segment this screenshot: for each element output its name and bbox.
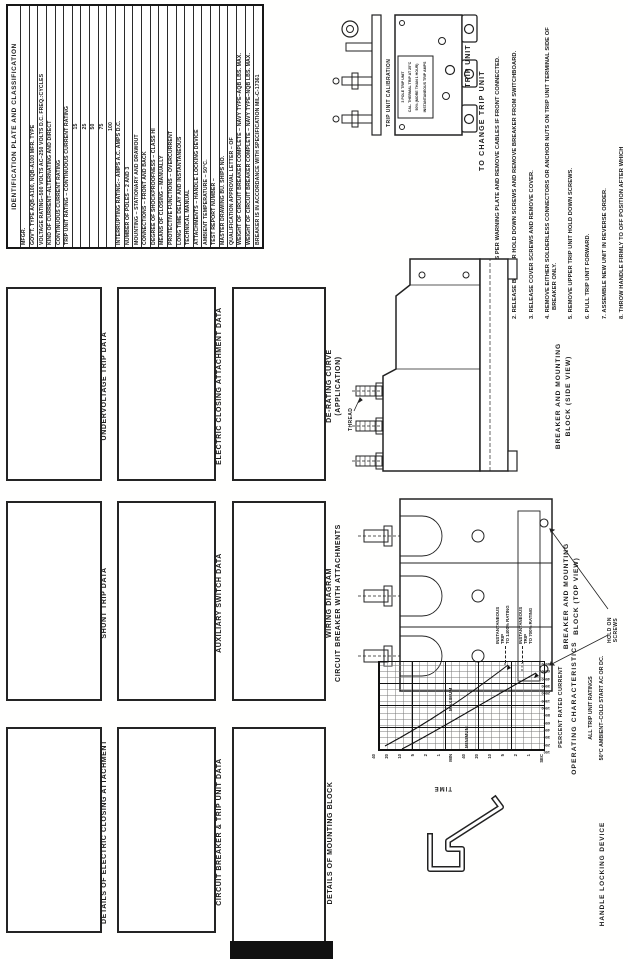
callout-dash-line	[522, 646, 523, 663]
table-row: 50	[89, 6, 98, 247]
box-label: DETAILS OF MOUNTING BLOCK	[326, 731, 335, 955]
table-row: LONG TIME DELAY AND INSTANTANEOUS	[176, 6, 185, 247]
table-row: 15	[72, 6, 81, 247]
y-tick: 1	[437, 754, 441, 773]
identification-table-rows: MFGR.GOV'T. TYPE AQB-A100, NQB-A100 MFR.…	[20, 6, 262, 247]
instruction-step: 7. ASSEMBLE NEW UNIT IN REVERSE ORDER.	[602, 3, 608, 319]
table-row: NUMBER OF POLES – 2 AND 3	[124, 6, 133, 247]
breaker-side-view-drawing	[350, 249, 550, 481]
table-row: MEANS OF CLOSING – MANUALLY	[158, 6, 167, 247]
table-row: INTERRUPTING RATING:– AMPS A.C. AMPS D.C…	[115, 6, 124, 247]
callout-dash-line	[505, 646, 506, 663]
y-tick: 2	[424, 754, 428, 773]
identification-table-title: IDENTIFICATION PLATE AND CLASSIFICATION	[8, 6, 20, 247]
box-label: AUXILIARY SWITCH DATA	[215, 505, 224, 701]
table-row: MOUNTING – STATIONARY AND DRAWOUT	[132, 6, 141, 247]
y-tick: 20	[385, 754, 389, 773]
side-view-caption: BREAKER AND MOUNTING BLOCK (SIDE VIEW)	[554, 311, 574, 481]
box-label: SHUNT TRIP DATA	[100, 505, 109, 701]
table-row: VOLTAGE RATING–500 VOLTS AC–250 VOLTS D.…	[37, 6, 46, 247]
y-tick: 40	[462, 754, 466, 773]
trip-unit-nameplate: 3 POLE TRIP UNITCAL. THERMAL TRIP AT 25°…	[398, 56, 431, 118]
table-row: 100	[106, 6, 115, 247]
instantaneous-trip-callout-2: INSTANTANEOUS TRIP TO 700% RATING	[518, 566, 534, 644]
chart-curves	[378, 663, 543, 751]
chart-title: OPERATING CHARACTERISTICS	[571, 623, 578, 793]
box-electric-closing-attachment-data	[117, 287, 216, 481]
chart-subtitle-1: ALL TRIP UNIT RATINGS	[588, 613, 594, 803]
y-tick: MIN	[449, 754, 453, 773]
box-label: DETAILS OF ELECTRIC CLOSING ATTACHMENT	[100, 731, 109, 933]
thread-callout: THREAD	[348, 408, 354, 431]
nameplate-line: 3 POLE TRIP UNIT	[402, 56, 406, 118]
y-tick: 5	[411, 754, 415, 773]
table-row: BREAKER IS IN ACCORDANCE WITH SPECIFICAT…	[253, 6, 262, 247]
table-row: 25	[80, 6, 89, 247]
box-label: CIRCUIT BREAKER & TRIP UNIT DATA	[215, 731, 224, 933]
instruction-step: 5. REMOVE UPPER TRIP UNIT HOLD DOWN SCRE…	[568, 3, 574, 319]
box-label: WIRING DIAGRAM CIRCUIT BREAKER WITH ATTA…	[325, 505, 343, 701]
box-details-mounting-block	[232, 727, 326, 955]
y-tick: 10	[398, 754, 402, 773]
chart-x-axis-label: PERCENT RATED CURRENT	[558, 651, 564, 763]
curve-label-maximum: MAXIMUM	[448, 687, 453, 711]
handle-locking-device-caption: HANDLE LOCKING DEVICE	[598, 789, 608, 959]
y-tick: 10	[488, 754, 492, 773]
box-auxiliary-switch-data	[117, 501, 216, 701]
y-tick: 2	[514, 754, 518, 773]
identification-table: IDENTIFICATION PLATE AND CLASSIFICATION …	[6, 4, 264, 249]
y-tick: 40	[372, 754, 376, 773]
y-tick: 20	[475, 754, 479, 773]
chart-x-ticks: 1002003004006008001000150020003000400060…	[546, 662, 558, 754]
instantaneous-trip-callout-1: INSTANTANEOUS TRIP TO 1400% RATING	[495, 566, 511, 644]
box-undervoltage-trip-data	[6, 287, 102, 481]
hold-on-screws-callout: HOLD ON SCREWS	[607, 617, 619, 643]
table-row: DEGREE OF SHOCKPROOFNESS – CLASS HI	[150, 6, 159, 247]
box-circuit-breaker-trip-unit-data	[117, 727, 216, 933]
nameplate-line: INSTANTANEOUS TRIP AMPS	[424, 56, 428, 118]
instruction-step: 8. THROW HANDLE FIRMLY TO OFF POSITION A…	[619, 3, 625, 319]
table-row: AMBIENT TEMPERATURE – 50°C.	[201, 6, 210, 247]
curve-label-minimum: MINIMUM	[464, 726, 469, 748]
box-details-electric-closing	[6, 727, 102, 933]
table-row: MFGR.	[20, 6, 29, 247]
box-derating-curve	[232, 287, 326, 481]
table-row: GOV'T. TYPE AQB-A100, NQB-A100 MFR. TYPE	[29, 6, 38, 247]
table-row: MASTER DRAWING BU. SHIPS NO.	[219, 6, 228, 247]
box-label: UNDERVOLTAGE TRIP DATA	[100, 291, 109, 481]
x-tick: 8000	[546, 654, 550, 666]
table-row: PROTECTIVE FUNCTIONS – OVERCURRENT	[167, 6, 176, 247]
nameplate-line: CAL. THERMAL TRIP AT 25°C	[409, 56, 413, 118]
table-row: QUALIFICATION APPROVAL LETTER – OF	[227, 6, 236, 247]
handle-locking-device-drawing	[420, 791, 605, 951]
table-row: 75	[98, 6, 107, 247]
table-row: TEST REPORT NUMBER –	[210, 6, 219, 247]
box-wiring-diagram	[232, 501, 326, 701]
box-shunt-trip-data	[6, 501, 102, 701]
binding-mark	[230, 941, 333, 959]
y-tick: 1	[527, 754, 531, 773]
chart-y-ticks: 402010521MIN402010521SEC	[372, 754, 544, 773]
table-row: CONTINUOUS CURRENT RATING	[55, 6, 64, 247]
table-row: KIND OF CURRENT–ALTERNATING AND DIRECT	[46, 6, 55, 247]
drawing-sheet: IDENTIFICATION PLATE AND CLASSIFICATION …	[0, 0, 628, 959]
table-row: TRIP UNIT RATING – CONTINUOUS CURRENT RA…	[63, 6, 72, 247]
table-row: TECHNICAL MANUAL	[184, 6, 193, 247]
change-trip-unit-title: TO CHANGE TRIP UNIT	[479, 70, 486, 171]
y-tick: SEC	[540, 754, 544, 773]
box-label: DE-RATING CURVE (APPLICATION)	[325, 291, 343, 481]
nameplate-line: 50% (MORE THAN 1 HOUR)	[416, 56, 420, 118]
y-tick: 5	[501, 754, 505, 773]
box-label: ELECTRIC CLOSING ATTACHMENT DATA	[215, 291, 224, 481]
table-row: CONNECTIONS – FRONT AND BACK	[141, 6, 150, 247]
table-row: WEIGHT OF CIRCUIT BREAKER COMPLETE – NAV…	[236, 6, 245, 247]
table-row: ATTACHMENTS – HANDLE LOCKING DEVICE	[193, 6, 202, 247]
trip-unit-calibration-label: TRIP UNIT CALIBRATION	[386, 59, 392, 127]
instruction-step: 6. PULL TRIP UNIT FORWARD.	[585, 3, 591, 319]
table-row: WEIGHT OF CIRCUIT BREAKER COMPLETE – NAV…	[245, 6, 254, 247]
chart-subtitle-2: 50°C AMBIENT–COLD START AC OR DC.	[599, 613, 605, 803]
trip-unit-caption: TRIP UNIT	[464, 1, 475, 131]
